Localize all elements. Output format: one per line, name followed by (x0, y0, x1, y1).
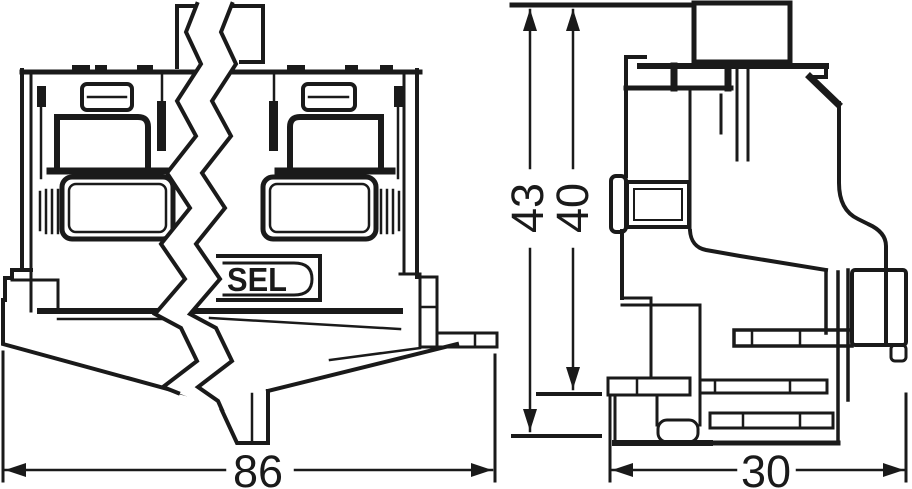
coil-hatch-left (40, 190, 58, 233)
brand-plate: SEL (218, 256, 320, 300)
dim-value-total-height: 43 (502, 183, 553, 233)
brand-label: SEL (227, 261, 287, 298)
arrowhead-left-icon (612, 463, 633, 477)
arrowhead-down-icon (566, 367, 580, 389)
dimension-body-height-40: 40 (538, 9, 600, 394)
break-lines: SEL (155, 4, 320, 410)
coil-hatch-right (381, 190, 399, 233)
arrowhead-right-icon (883, 463, 904, 477)
arrowhead-left-icon (5, 463, 26, 477)
arrowhead-up-icon (566, 9, 580, 31)
drawing-canvas: SEL (0, 0, 912, 489)
side-view (608, 3, 906, 443)
arrowhead-up-icon (523, 9, 537, 31)
arrowhead-right-icon (471, 463, 492, 477)
dim-value-body-height: 40 (547, 183, 598, 233)
technical-drawing: SEL (0, 0, 912, 489)
dim-value-overall-width: 86 (233, 446, 283, 489)
arrowhead-down-icon (523, 409, 537, 431)
dimension-overall-width-86: 86 (3, 352, 495, 489)
dim-value-depth: 30 (741, 446, 791, 489)
front-view (3, 6, 497, 443)
